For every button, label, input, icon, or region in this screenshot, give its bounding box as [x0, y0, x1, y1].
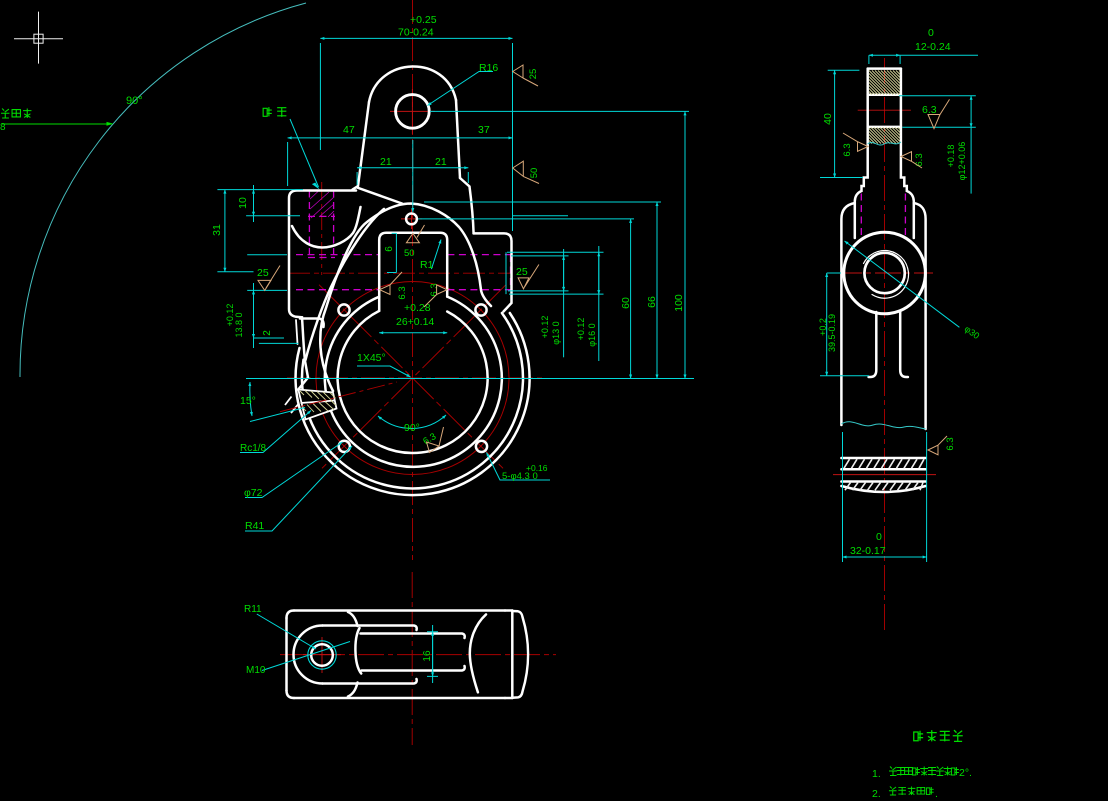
svg-text:100: 100: [673, 294, 685, 312]
svg-text:21: 21: [435, 156, 447, 168]
svg-text:90°: 90°: [404, 422, 420, 434]
svg-text:32-0.17: 32-0.17: [850, 545, 886, 557]
svg-text:φ12+0.06: φ12+0.06: [957, 142, 967, 181]
svg-text:47: 47: [343, 124, 355, 136]
svg-text:0: 0: [928, 27, 934, 39]
svg-text:2°.: 2°.: [959, 767, 972, 779]
svg-text:66: 66: [646, 296, 658, 308]
svg-text:6: 6: [384, 246, 395, 252]
svg-text:50: 50: [404, 248, 415, 259]
svg-text:+0.12: +0.12: [540, 316, 550, 339]
svg-text:+0.18: +0.18: [946, 145, 956, 168]
svg-text:6.3: 6.3: [397, 286, 408, 299]
svg-text:φ72: φ72: [244, 487, 263, 499]
svg-text:Rc1/8: Rc1/8: [240, 443, 267, 454]
svg-text:R41: R41: [245, 520, 264, 532]
svg-text:31: 31: [211, 224, 223, 236]
svg-text:6.3: 6.3: [842, 143, 853, 156]
svg-text:15°: 15°: [240, 395, 256, 407]
svg-text:1.: 1.: [872, 768, 881, 780]
svg-text:R16: R16: [479, 62, 498, 74]
svg-text:16: 16: [422, 650, 433, 662]
svg-text:6.3: 6.3: [914, 153, 925, 166]
svg-text:25: 25: [528, 69, 539, 80]
svg-text:12-0.24: 12-0.24: [915, 41, 951, 53]
svg-text:25: 25: [257, 267, 269, 279]
svg-text:21: 21: [380, 156, 392, 168]
svg-text:1X45°: 1X45°: [357, 352, 386, 364]
svg-text:40: 40: [822, 113, 834, 125]
svg-text:37: 37: [478, 124, 490, 136]
svg-text:90°: 90°: [126, 95, 143, 107]
svg-text:+0.12: +0.12: [576, 318, 586, 341]
svg-text:39.5-0.19: 39.5-0.19: [827, 314, 837, 352]
svg-text:φ16 0: φ16 0: [587, 323, 597, 346]
svg-text:60: 60: [620, 297, 632, 309]
svg-text:0: 0: [876, 531, 882, 543]
svg-text:50: 50: [529, 168, 540, 179]
svg-text:R11: R11: [244, 604, 262, 615]
svg-text:R1: R1: [420, 259, 434, 271]
svg-text:2: 2: [262, 330, 273, 336]
svg-text:φ13 0: φ13 0: [551, 321, 561, 344]
svg-text:2.: 2.: [872, 788, 881, 800]
svg-text:.: .: [935, 788, 938, 800]
svg-text:5-φ4.3 0: 5-φ4.3 0: [502, 471, 538, 482]
svg-text:25: 25: [516, 266, 528, 278]
svg-text:M10: M10: [246, 665, 266, 676]
svg-text:+0.25: +0.25: [410, 14, 437, 26]
svg-text:26+0.14: 26+0.14: [396, 316, 434, 328]
svg-text:70-0.24: 70-0.24: [398, 27, 434, 39]
svg-text:10: 10: [237, 197, 249, 209]
svg-text:13.8 0: 13.8 0: [234, 312, 244, 337]
svg-text:8: 8: [0, 122, 6, 133]
svg-text:6.3: 6.3: [945, 437, 956, 450]
